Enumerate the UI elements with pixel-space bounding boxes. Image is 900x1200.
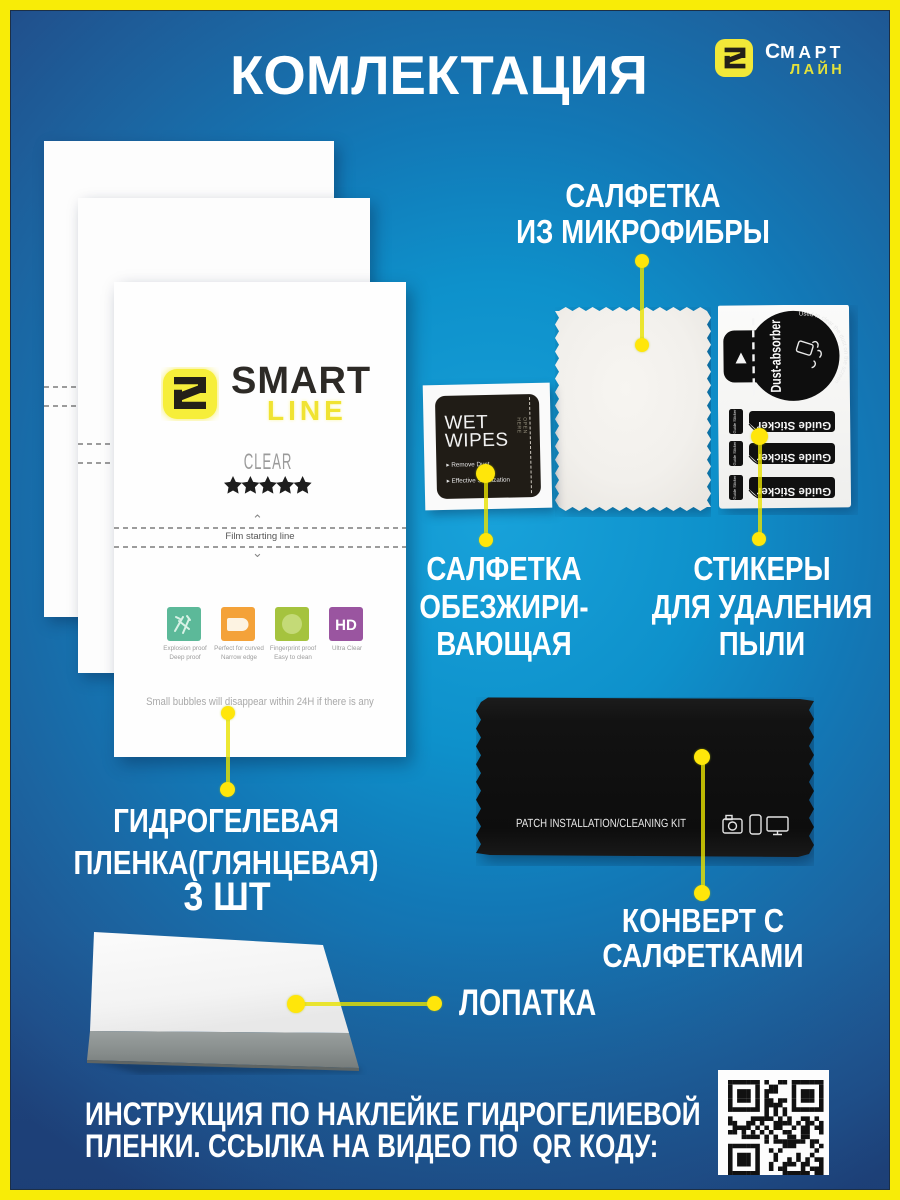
svg-text:Dust-absorber: Dust-absorber <box>768 319 785 392</box>
svg-text:PATCH INSTALLATION/CLEANING KI: PATCH INSTALLATION/CLEANING KIT <box>516 816 686 830</box>
svg-text:Guide Sticker: Guide Sticker <box>756 451 831 463</box>
svg-text:Guide Sticker: Guide Sticker <box>732 441 737 466</box>
svg-text:Guide Sticker: Guide Sticker <box>756 419 831 431</box>
svg-text:Guide Sticker: Guide Sticker <box>732 409 737 434</box>
svg-text:Guide Sticker: Guide Sticker <box>756 485 831 497</box>
svg-text:Guide Sticker: Guide Sticker <box>732 475 737 500</box>
